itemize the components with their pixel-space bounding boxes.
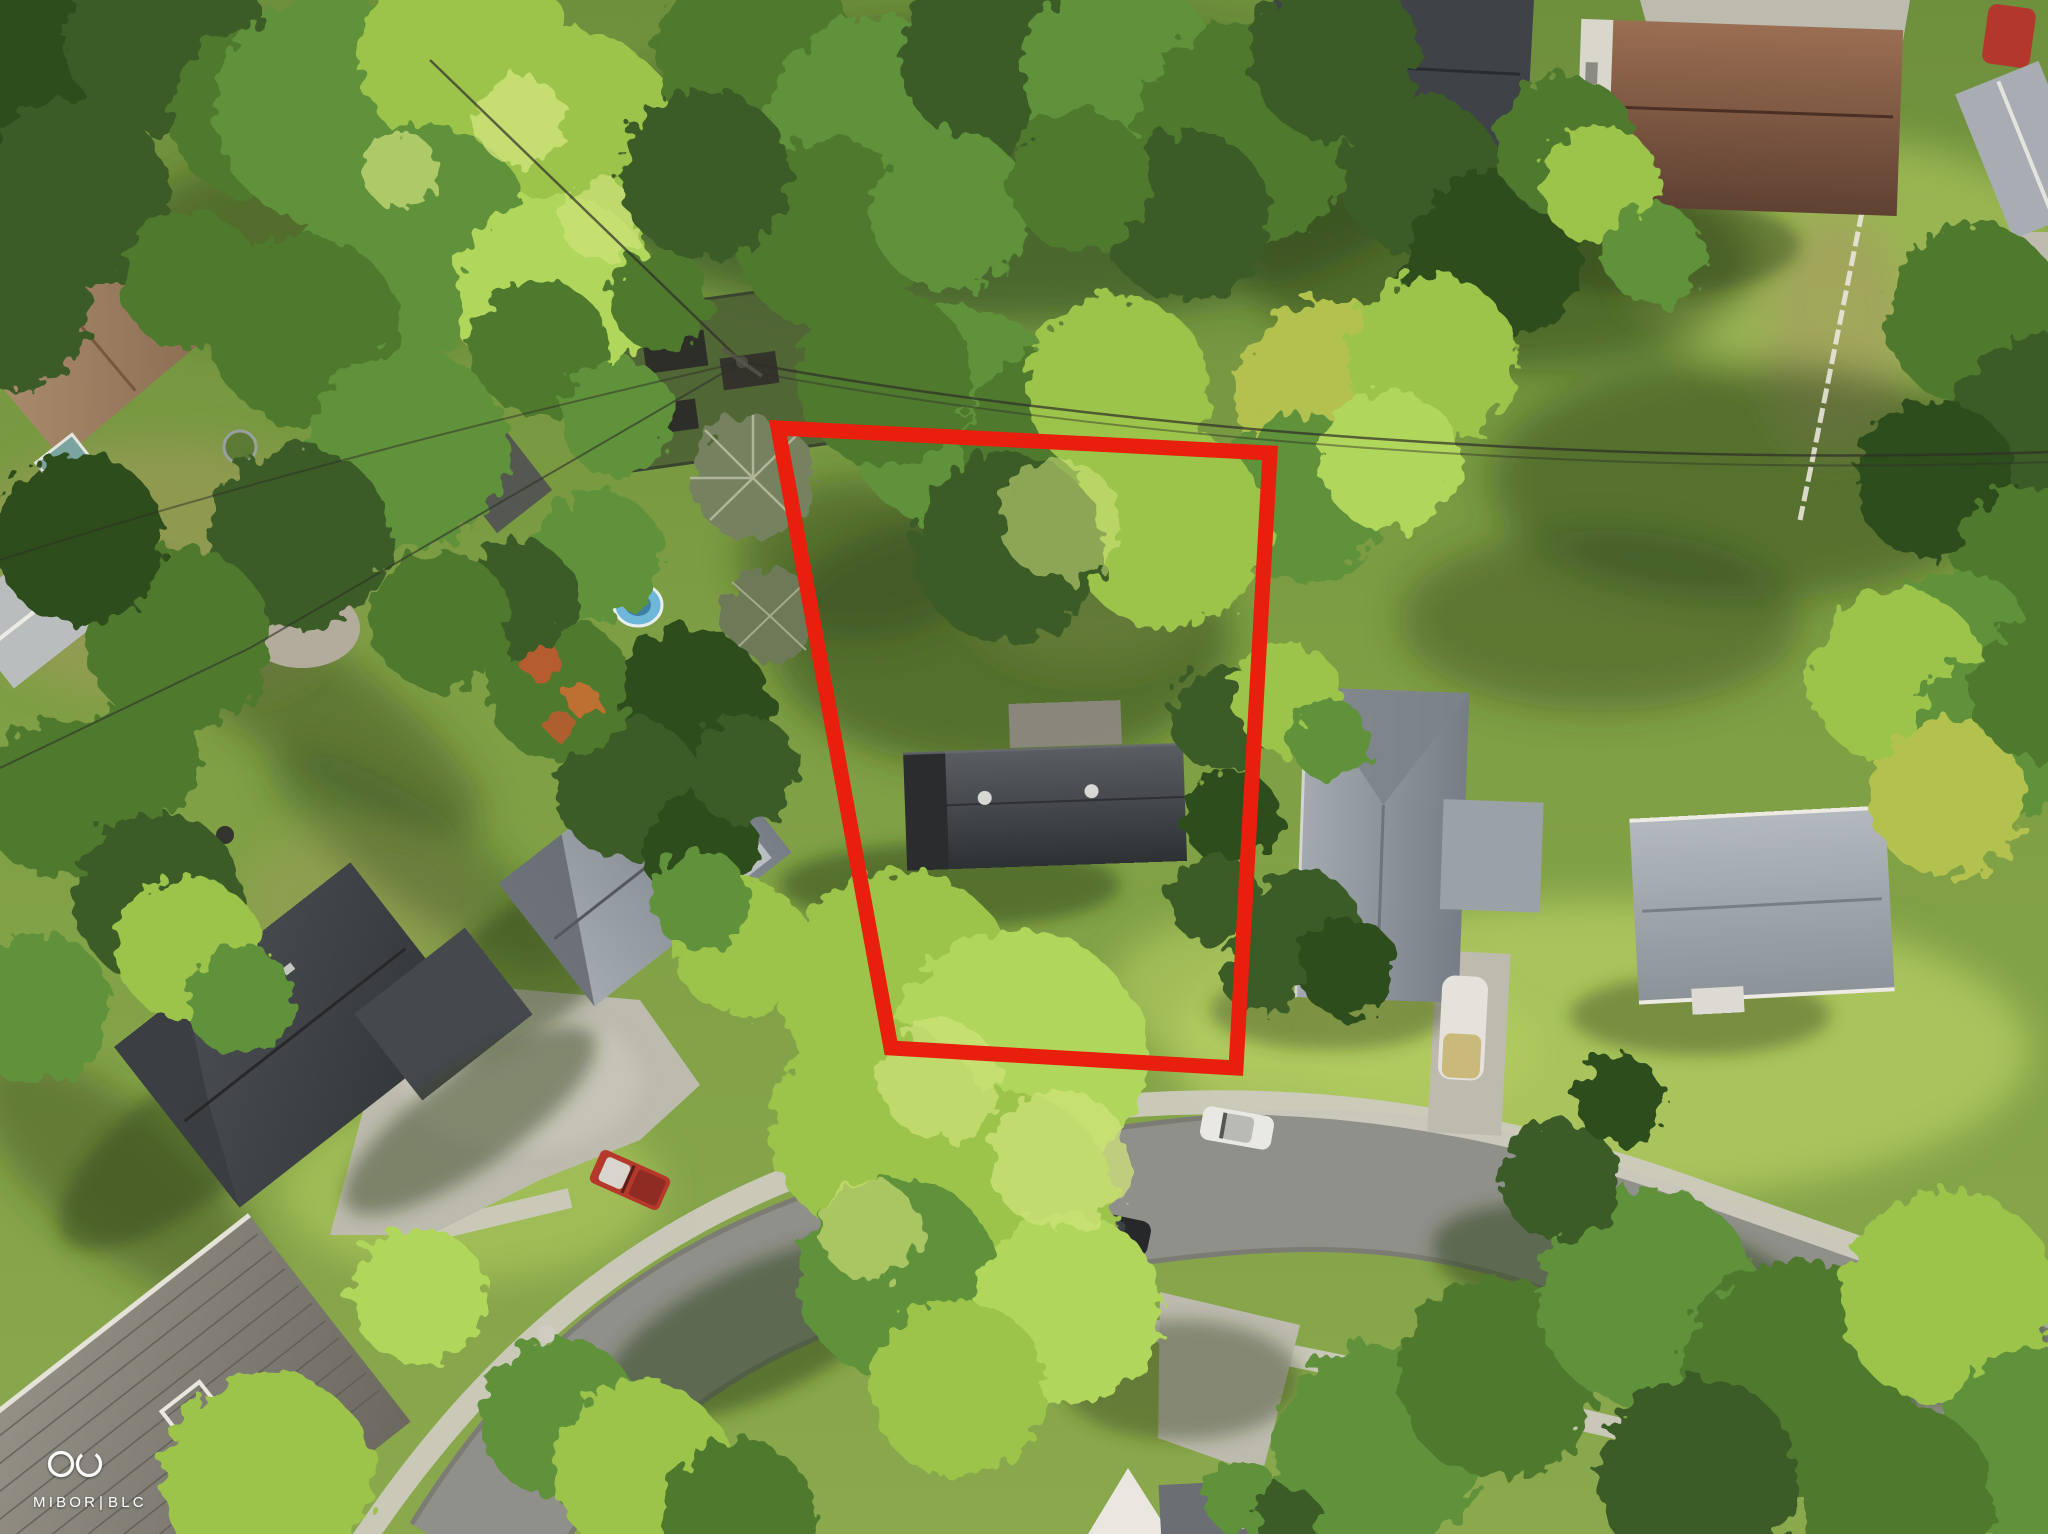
watermark-brand-left: MIBOR — [33, 1494, 98, 1511]
covered-car — [1437, 975, 1488, 1081]
aerial-photo: MIBOR | BLC — [0, 0, 2048, 1534]
house-far-right — [1629, 806, 1895, 1017]
trampoline — [224, 431, 256, 463]
watermark-brand-right: BLC — [108, 1494, 147, 1511]
red-car-top — [1981, 3, 2037, 69]
watermark-divider: | — [99, 1494, 103, 1511]
